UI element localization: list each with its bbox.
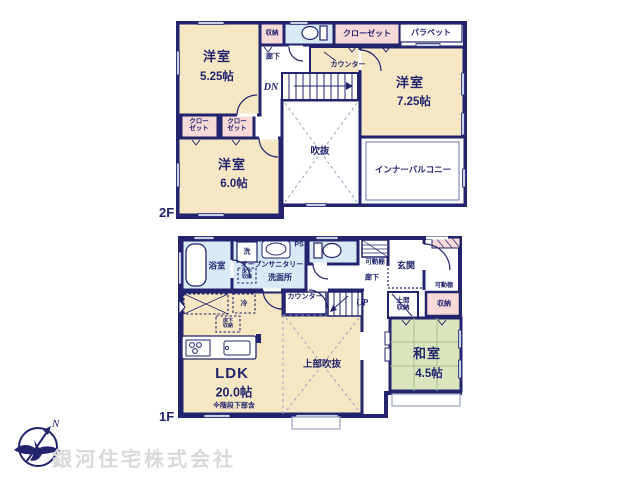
- label-ldk-size: 20.0帖: [216, 386, 253, 399]
- floor2-tag: 2F: [159, 205, 174, 220]
- label-fukinuke: 吹抜: [310, 147, 329, 157]
- label-upper-void: 上部吹抜: [303, 360, 341, 370]
- floor2-plan: 洋室 5.25帖 収納 クローゼット パラペット 廊下 カウンター DN 洋室 …: [176, 21, 468, 221]
- kitchen-sink: [224, 341, 250, 355]
- bathtub: [186, 244, 206, 286]
- label-closet-top: クローゼット: [343, 30, 391, 38]
- label-yoshitsu725-name: 洋室: [396, 76, 424, 90]
- label-closet-a: クローゼット: [187, 119, 211, 133]
- label-stairs-dn: DN: [264, 83, 278, 94]
- label-storage-1f: 収納: [437, 300, 451, 307]
- label-ldk-name: LDK: [215, 366, 249, 382]
- compass-arrowhead: [43, 426, 51, 435]
- label-sanitary1: オープンサニタリー: [241, 261, 304, 268]
- label-ldk-note: ※階段下部含: [213, 402, 255, 409]
- label-hallway-1f: 廊下: [365, 274, 379, 281]
- room-yoshitsu-525: [178, 23, 260, 115]
- floor1-tag: 1F: [159, 409, 174, 424]
- washstand: [262, 241, 290, 258]
- label-washitsu-size: 4.5帖: [415, 368, 443, 380]
- floorplan-canvas: 洋室 5.25帖 収納 クローゼット パラペット 廊下 カウンター DN 洋室 …: [0, 0, 640, 480]
- toilet-fixture-2f: [302, 26, 327, 40]
- label-storage-2f: 収納: [266, 31, 279, 38]
- label-doma-storage: 土間収納: [395, 298, 411, 312]
- label-counter-2f: カウンター: [331, 61, 366, 68]
- label-pipe-space: PS: [294, 241, 303, 248]
- label-washitsu-name: 和室: [413, 347, 441, 361]
- label-inner-balcony: インナーバルコニー: [375, 166, 451, 175]
- shelf-hatch-hall: [362, 240, 388, 257]
- label-yoshitsu60-name: 洋室: [218, 158, 246, 172]
- label-fridge: 冷: [241, 300, 248, 307]
- company-watermark: 銀河住宅株式会社: [52, 443, 236, 472]
- label-entrance: 玄関: [397, 261, 415, 270]
- label-yoshitsu725-size: 7.25帖: [397, 96, 431, 108]
- label-laundry: 洗: [244, 248, 251, 255]
- floor1-plan: 浴室 洗 オープンサニタリー 洗面所 PS 可動棚 廊下 玄関 可動棚 カウンタ…: [178, 236, 466, 436]
- room-yoshitsu-725: [360, 47, 464, 137]
- stairs-2f: [282, 73, 358, 100]
- label-stairs-up: UP: [356, 298, 368, 307]
- toilet-fixture-1f: [314, 243, 341, 258]
- compass-north-label: N: [51, 418, 60, 430]
- label-yoshitsu525-name: 洋室: [203, 50, 231, 64]
- label-underfloor-b: 床下収納: [223, 319, 234, 330]
- label-counter-1f: カウンター: [288, 293, 323, 300]
- label-yoshitsu525-size: 5.25帖: [200, 71, 234, 83]
- label-bathroom: 浴室: [208, 262, 225, 271]
- label-shelf-hall: 可動棚: [365, 260, 385, 267]
- room-yoshitsu-60: [178, 138, 280, 215]
- kitchen-counter: [182, 334, 261, 359]
- label-parapet: パラペット: [411, 29, 451, 37]
- label-hallway-2f: 廊下: [266, 53, 280, 60]
- label-shelf-entry: 可動棚: [435, 283, 453, 289]
- label-closet-b: クローゼット: [225, 119, 249, 133]
- label-yoshitsu60-size: 6.0帖: [220, 178, 248, 190]
- label-sanitary2: 洗面所: [268, 274, 292, 282]
- label-underfloor-a: 床下収納: [242, 270, 253, 281]
